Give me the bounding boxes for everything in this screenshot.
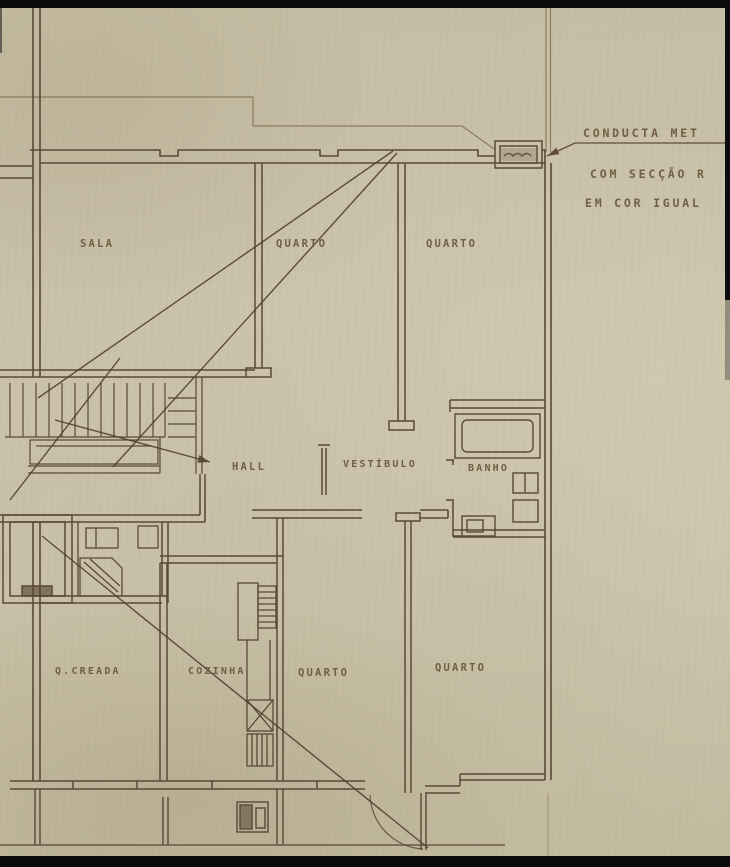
wc-fixtures [78,522,158,596]
door-arc [370,793,426,850]
room-label-quarto-bottom-right: QUARTO [435,662,486,674]
room-label-quarto-top-middle: QUARTO [276,238,327,250]
room-label-quarto-bottom-middle: QUARTO [298,667,349,679]
staircase [5,377,202,474]
diagonal-marks [10,151,428,848]
room-label-hall: HALL [232,461,266,473]
room-label-cozinha: COZINHA [188,666,246,677]
annotation-line-3: EM COR IGUAL [585,196,702,210]
room-label-quarto-top-right: QUARTO [426,238,477,250]
annotation-line-1: CONDUCTA MET [583,126,700,140]
room-labels: SALA QUARTO QUARTO HALL VESTÍBULO BANHO … [55,238,509,679]
room-label-vestibulo: VESTÍBULO [343,457,417,470]
room-label-sala: SALA [80,238,114,250]
annotation-text: CONDUCTA MET COM SECÇÃO R EM COR IGUAL [583,126,707,210]
floorplan-sheet: CONDUCTA MET COM SECÇÃO R EM COR IGUAL S… [0,0,730,867]
room-label-quarto-creada: Q.CREADA [55,666,121,677]
floorplan-drawing: CONDUCTA MET COM SECÇÃO R EM COR IGUAL S… [0,0,730,867]
balcony [0,789,505,850]
elevator-shaft [3,515,72,603]
fold-lines [0,8,551,856]
bath-fixtures [455,414,540,536]
annotation-line-2: COM SECÇÃO R [590,166,707,181]
interior-walls [10,163,545,793]
room-label-banho: BANHO [468,463,509,474]
conduit-box [495,141,542,168]
